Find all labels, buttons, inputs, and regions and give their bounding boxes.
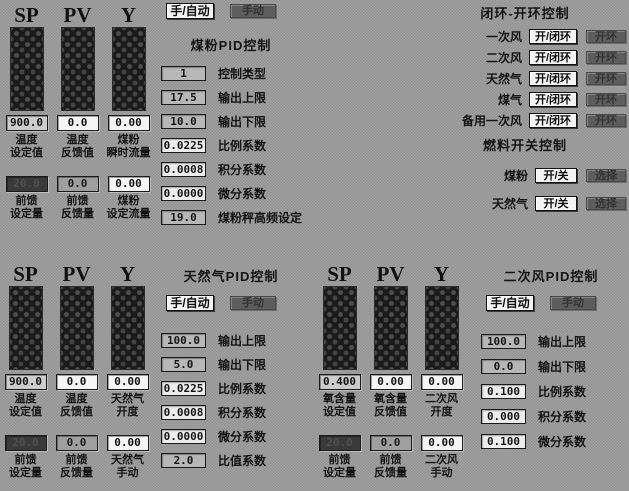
air-proportional-coefficient-input[interactable]: 0.100 [481, 384, 526, 399]
coal-output-lower-limit-label: 输出下限 [218, 113, 266, 130]
pid-field-row: 0.0 输出下限 [481, 358, 629, 375]
air-pv-column: PV 0.00 氧含量 反馈值 0.0 前馈 反馈量 [367, 261, 414, 480]
coal-pid-title: 煤粉PID控制 [161, 35, 301, 54]
coal-derivative-coefficient-label: 微分系数 [218, 185, 266, 202]
pid-field-row: 0.0000 微分系数 [161, 428, 316, 445]
pv-header: PV [64, 4, 92, 26]
coal-temp-setpoint-label: 温度 设定值 [10, 134, 43, 160]
y-bar-gauge [112, 27, 146, 111]
pv-bar-gauge [61, 27, 95, 111]
coal-flow-display: 0.00 [108, 115, 150, 131]
air-manual-label: 二次风 手动 [425, 454, 458, 480]
coal-integral-coefficient-label: 积分系数 [218, 161, 266, 178]
gas-manual-button[interactable]: 手动 [230, 296, 276, 310]
pid-field-row: 0.0225 比例系数 [161, 137, 316, 154]
fuel-row-label: 煤粉 [504, 167, 528, 184]
pv-header: PV [63, 263, 91, 285]
hmi-combustion-control-screen: SP 900.0 温度 设定值 20.0 前馈 设定量 PV 0.0 温度 反馈… [0, 0, 629, 491]
backup-primary-air-open-close-loop-toggle[interactable]: 开/闭环 [529, 113, 577, 128]
pid-field-row: 5.0 输出下限 [161, 356, 316, 373]
coal-scale-frequency-setting-label: 煤粉秤高频设定 [218, 209, 302, 226]
gas-temp-feedback-label: 温度 反馈值 [60, 393, 93, 419]
gas-output-lower-limit-input[interactable]: 5.0 [161, 357, 206, 372]
loop-row-label: 煤气 [498, 91, 522, 108]
gas-pid-fields: 100.0 输出上限 5.0 输出下限 0.0225 比例系数 0.0008 积… [161, 332, 316, 469]
loop-row-label: 天然气 [486, 70, 522, 87]
loop-row-label: 二次风 [486, 49, 522, 66]
coal-sp-column: SP 900.0 温度 设定值 20.0 前馈 设定量 [3, 2, 50, 221]
pid-field-row: 19.0 煤粉秤高频设定 [161, 209, 316, 226]
y-header: Y [120, 263, 135, 285]
primary-air-open-close-loop-toggle[interactable]: 开/闭环 [529, 29, 577, 44]
pid-field-row: 17.5 输出上限 [161, 89, 316, 106]
coal-integral-coefficient-input[interactable]: 0.0008 [161, 162, 206, 177]
coal-pid-panel: 手/自动 手动 煤粉PID控制 1 控制类型 17.5 输出上限 10.0 输出… [161, 3, 316, 233]
air-integral-coefficient-label: 积分系数 [538, 408, 586, 425]
coal-powder-select-button[interactable]: 选择 [586, 169, 626, 182]
pid-field-row: 100.0 输出上限 [161, 332, 316, 349]
gas-pid-buttons: 手/自动 手动 [166, 295, 316, 311]
air-ff-feedback-display: 0.0 [370, 435, 412, 451]
loop-row-primary-air: 一次风 开/闭环 开环 [424, 28, 626, 44]
natural-gas-open-close-loop-toggle[interactable]: 开/闭环 [529, 71, 577, 86]
pv-header: PV [377, 263, 405, 285]
air-output-lower-limit-label: 输出下限 [538, 358, 586, 375]
gas-output-upper-limit-label: 输出上限 [218, 332, 266, 349]
gas-manual-input[interactable]: 0.00 [107, 435, 149, 451]
air-pid-buttons: 手/自动 手动 [486, 295, 629, 311]
coal-gas-open-close-loop-toggle[interactable]: 开/闭环 [529, 92, 577, 107]
secondary-air-open-close-loop-toggle[interactable]: 开/闭环 [529, 50, 577, 65]
loop-row-backup-primary-air: 备用一次风 开/闭环 开环 [424, 112, 626, 128]
natural-gas-open-loop-status-button[interactable]: 开环 [586, 72, 626, 85]
coal-ff-feedback-label: 前馈 反馈量 [61, 195, 94, 221]
sp-bar-gauge [323, 286, 357, 370]
air-manual-auto-button[interactable]: 手/自动 [486, 295, 534, 311]
pid-field-row: 0.100 微分系数 [481, 433, 629, 450]
gas-sp-column: SP 900.0 温度 设定值 20.0 前馈 设定量 [2, 261, 49, 480]
pid-field-row: 0.0000 微分系数 [161, 185, 316, 202]
coal-gauge-cluster: SP 900.0 温度 设定值 20.0 前馈 设定量 PV 0.0 温度 反馈… [3, 2, 152, 221]
coal-proportional-coefficient-label: 比例系数 [218, 137, 266, 154]
loop-row-coal-gas: 煤气 开/闭环 开环 [424, 91, 626, 107]
pid-field-row: 0.0008 积分系数 [161, 161, 316, 178]
pid-field-row: 2.0 比值系数 [161, 452, 316, 469]
gas-integral-coefficient-input[interactable]: 0.0008 [161, 405, 206, 420]
coal-manual-button[interactable]: 手动 [230, 4, 276, 18]
loop-control-rows: 一次风 开/闭环 开环 二次风 开/闭环 开环 天然气 开/闭环 开环 煤气 开… [424, 28, 626, 128]
coal-scale-frequency-setting-input[interactable]: 19.0 [161, 210, 206, 225]
pv-bar-gauge [374, 286, 408, 370]
oxygen-feedback-label: 氧含量 反馈值 [374, 393, 407, 419]
gas-output-upper-limit-input[interactable]: 100.0 [161, 333, 206, 348]
fuel-row-label: 天然气 [492, 195, 528, 212]
gas-ff-setpoint-label: 前馈 设定量 [9, 454, 42, 480]
coal-output-upper-limit-label: 输出上限 [218, 89, 266, 106]
coal-ff-feedback-display: 0.0 [57, 176, 99, 192]
air-pid-fields: 100.0 输出上限 0.0 输出下限 0.100 比例系数 0.000 积分系… [481, 333, 629, 450]
gas-opening-display: 0.00 [107, 374, 149, 390]
coal-flow-label: 煤粉 瞬时流量 [107, 134, 151, 160]
oxygen-feedback-display: 0.00 [370, 374, 412, 390]
pid-field-row: 0.000 积分系数 [481, 408, 629, 425]
air-derivative-coefficient-input[interactable]: 0.100 [481, 434, 526, 449]
loop-control-title: 闭环-开环控制 [424, 3, 626, 22]
air-opening-label: 二次风 开度 [425, 393, 458, 419]
sp-header: SP [13, 263, 38, 285]
coal-ff-setpoint-display[interactable]: 20.0 [6, 176, 48, 192]
fuel-row-natural-gas: 天然气 开/关 选择 [424, 195, 626, 211]
gas-temp-feedback-display: 0.0 [56, 374, 98, 390]
y-header: Y [121, 4, 136, 26]
coal-output-lower-limit-input[interactable]: 10.0 [161, 114, 206, 129]
gas-output-lower-limit-label: 输出下限 [218, 356, 266, 373]
oxygen-setpoint-label: 氧含量 设定值 [323, 393, 356, 419]
pid-field-row: 0.0225 比例系数 [161, 380, 316, 397]
coal-control-type-input[interactable]: 1 [161, 66, 206, 81]
air-y-column: Y 0.00 二次风 开度 0.00 二次风 手动 [418, 261, 465, 480]
oxygen-setpoint-input[interactable]: 0.400 [319, 374, 361, 390]
y-bar-gauge [425, 286, 459, 370]
air-sp-column: SP 0.400 氧含量 设定值 20.0 前馈 设定量 [316, 261, 363, 480]
coal-temp-setpoint-input[interactable]: 900.0 [6, 115, 48, 131]
air-gauge-cluster: SP 0.400 氧含量 设定值 20.0 前馈 设定量 PV 0.00 氧含量… [316, 261, 465, 480]
sp-header: SP [14, 4, 39, 26]
coal-proportional-coefficient-input[interactable]: 0.0225 [161, 138, 206, 153]
gas-proportional-coefficient-input[interactable]: 0.0225 [161, 381, 206, 396]
coal-pid-buttons: 手/自动 手动 [166, 3, 316, 19]
air-ff-setpoint-label: 前馈 设定量 [323, 454, 356, 480]
air-integral-coefficient-input[interactable]: 0.000 [481, 409, 526, 424]
y-header: Y [434, 263, 449, 285]
gas-derivative-coefficient-input[interactable]: 0.0000 [161, 429, 206, 444]
gas-ff-feedback-label: 前馈 反馈量 [60, 454, 93, 480]
natural-gas-on-off-toggle[interactable]: 开/关 [535, 196, 577, 211]
y-bar-gauge [111, 286, 145, 370]
gas-opening-label: 天然气 开度 [111, 393, 144, 419]
sp-bar-gauge [9, 286, 43, 370]
air-derivative-coefficient-label: 微分系数 [538, 433, 586, 450]
gas-derivative-coefficient-label: 微分系数 [218, 428, 266, 445]
pid-field-row: 0.100 比例系数 [481, 383, 629, 400]
pv-bar-gauge [60, 286, 94, 370]
gas-manual-label: 天然气 手动 [111, 454, 144, 480]
gas-gauge-cluster: SP 900.0 温度 设定值 20.0 前馈 设定量 PV 0.0 温度 反馈… [2, 261, 151, 480]
gas-pid-panel: 天然气PID控制 手/自动 手动 100.0 输出上限 5.0 输出下限 0.0… [161, 266, 316, 476]
coal-temp-feedback-label: 温度 反馈值 [61, 134, 94, 160]
gas-manual-auto-button[interactable]: 手/自动 [166, 295, 214, 311]
loop-row-label: 备用一次风 [462, 112, 522, 129]
gas-y-column: Y 0.00 天然气 开度 0.00 天然气 手动 [104, 261, 151, 480]
coal-temp-feedback-display: 0.0 [57, 115, 99, 131]
air-ff-setpoint-display[interactable]: 20.0 [319, 435, 361, 451]
coal-output-upper-limit-input[interactable]: 17.5 [161, 90, 206, 105]
coal-derivative-coefficient-input[interactable]: 0.0000 [161, 186, 206, 201]
natural-gas-select-button[interactable]: 选择 [586, 197, 626, 210]
fuel-row-coal-powder: 煤粉 开/关 选择 [424, 167, 626, 183]
coal-set-flow-input[interactable]: 0.00 [108, 176, 150, 192]
backup-primary-air-open-loop-status-button[interactable]: 开环 [586, 114, 626, 127]
pid-field-row: 0.0008 积分系数 [161, 404, 316, 421]
air-opening-display: 0.00 [421, 374, 463, 390]
fuel-control-title: 燃料开关控制 [424, 135, 626, 154]
coal-ff-setpoint-label: 前馈 设定量 [10, 195, 43, 221]
fuel-control-rows: 煤粉 开/关 选择 天然气 开/关 选择 [424, 167, 626, 211]
coal-pid-fields: 1 控制类型 17.5 输出上限 10.0 输出下限 0.0225 比例系数 0… [161, 65, 316, 226]
pid-field-row: 100.0 输出上限 [481, 333, 629, 350]
pid-field-row: 1 控制类型 [161, 65, 316, 82]
gas-proportional-coefficient-label: 比例系数 [218, 380, 266, 397]
gas-ratio-coefficient-label: 比值系数 [218, 452, 266, 469]
air-proportional-coefficient-label: 比例系数 [538, 383, 586, 400]
coal-control-type-label: 控制类型 [218, 65, 266, 82]
gas-integral-coefficient-label: 积分系数 [218, 404, 266, 421]
sp-header: SP [327, 263, 352, 285]
coal-gas-open-loop-status-button[interactable]: 开环 [586, 93, 626, 106]
gas-ratio-coefficient-input[interactable]: 2.0 [161, 453, 206, 468]
air-output-upper-limit-label: 输出上限 [538, 333, 586, 350]
secondary-air-open-loop-status-button[interactable]: 开环 [586, 51, 626, 64]
sp-bar-gauge [10, 27, 44, 111]
gas-pv-column: PV 0.0 温度 反馈值 0.0 前馈 反馈量 [53, 261, 100, 480]
air-manual-button[interactable]: 手动 [550, 296, 596, 310]
loop-control-panel: 闭环-开环控制 一次风 开/闭环 开环 二次风 开/闭环 开环 天然气 开/闭环… [424, 3, 626, 223]
loop-row-natural-gas: 天然气 开/闭环 开环 [424, 70, 626, 86]
loop-row-secondary-air: 二次风 开/闭环 开环 [424, 49, 626, 65]
coal-set-flow-label: 煤粉 设定流量 [107, 195, 151, 221]
air-manual-input[interactable]: 0.00 [421, 435, 463, 451]
coal-powder-on-off-toggle[interactable]: 开/关 [535, 168, 577, 183]
air-output-upper-limit-input[interactable]: 100.0 [481, 334, 526, 349]
air-output-lower-limit-input[interactable]: 0.0 [481, 359, 526, 374]
gas-temp-setpoint-label: 温度 设定值 [9, 393, 42, 419]
air-pid-panel: 二次风PID控制 手/自动 手动 100.0 输出上限 0.0 输出下限 0.1… [481, 266, 629, 458]
air-pid-title: 二次风PID控制 [481, 266, 621, 285]
gas-ff-setpoint-display[interactable]: 20.0 [5, 435, 47, 451]
coal-manual-auto-button[interactable]: 手/自动 [166, 3, 214, 19]
loop-row-label: 一次风 [486, 28, 522, 45]
gas-ff-feedback-display: 0.0 [56, 435, 98, 451]
gas-temp-setpoint-input[interactable]: 900.0 [5, 374, 47, 390]
primary-air-open-loop-status-button[interactable]: 开环 [586, 30, 626, 43]
pid-field-row: 10.0 输出下限 [161, 113, 316, 130]
coal-y-column: Y 0.00 煤粉 瞬时流量 0.00 煤粉 设定流量 [105, 2, 152, 221]
gas-pid-title: 天然气PID控制 [161, 266, 301, 285]
air-ff-feedback-label: 前馈 反馈量 [374, 454, 407, 480]
coal-pv-column: PV 0.0 温度 反馈值 0.0 前馈 反馈量 [54, 2, 101, 221]
